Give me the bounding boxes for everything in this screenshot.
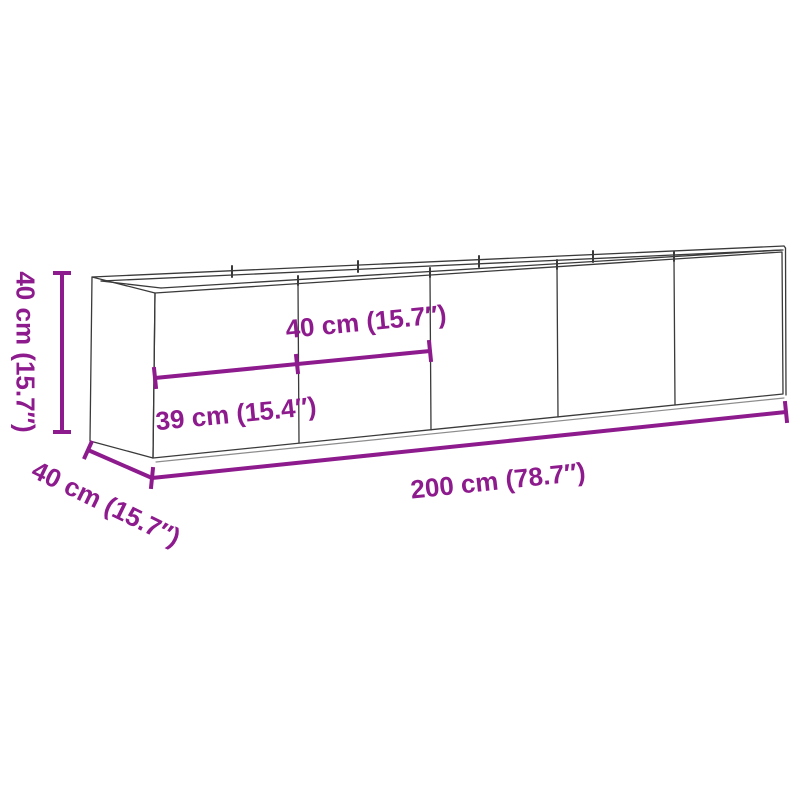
planter-right-edge [786, 248, 787, 395]
rim-back-inner-edge [101, 250, 783, 281]
planter-left-face [90, 277, 155, 458]
height-dimension-label: 40 cm (15.7″) [10, 271, 41, 432]
panel-width-dimension-line [154, 340, 431, 389]
depth-dimension-line [84, 441, 152, 478]
rim-front-inner-edge [161, 250, 781, 288]
rim-back-outer-edge [92, 246, 784, 277]
height-dimension-line [53, 273, 71, 432]
planter-dimension-diagram: 40 cm (15.7″) 40 cm (15.7″) 39 cm (15.4″… [0, 0, 800, 800]
planter-right-corner [784, 246, 786, 248]
front-divider-3 [557, 268, 558, 417]
diagram-canvas [0, 0, 800, 800]
front-divider-4 [674, 260, 675, 405]
